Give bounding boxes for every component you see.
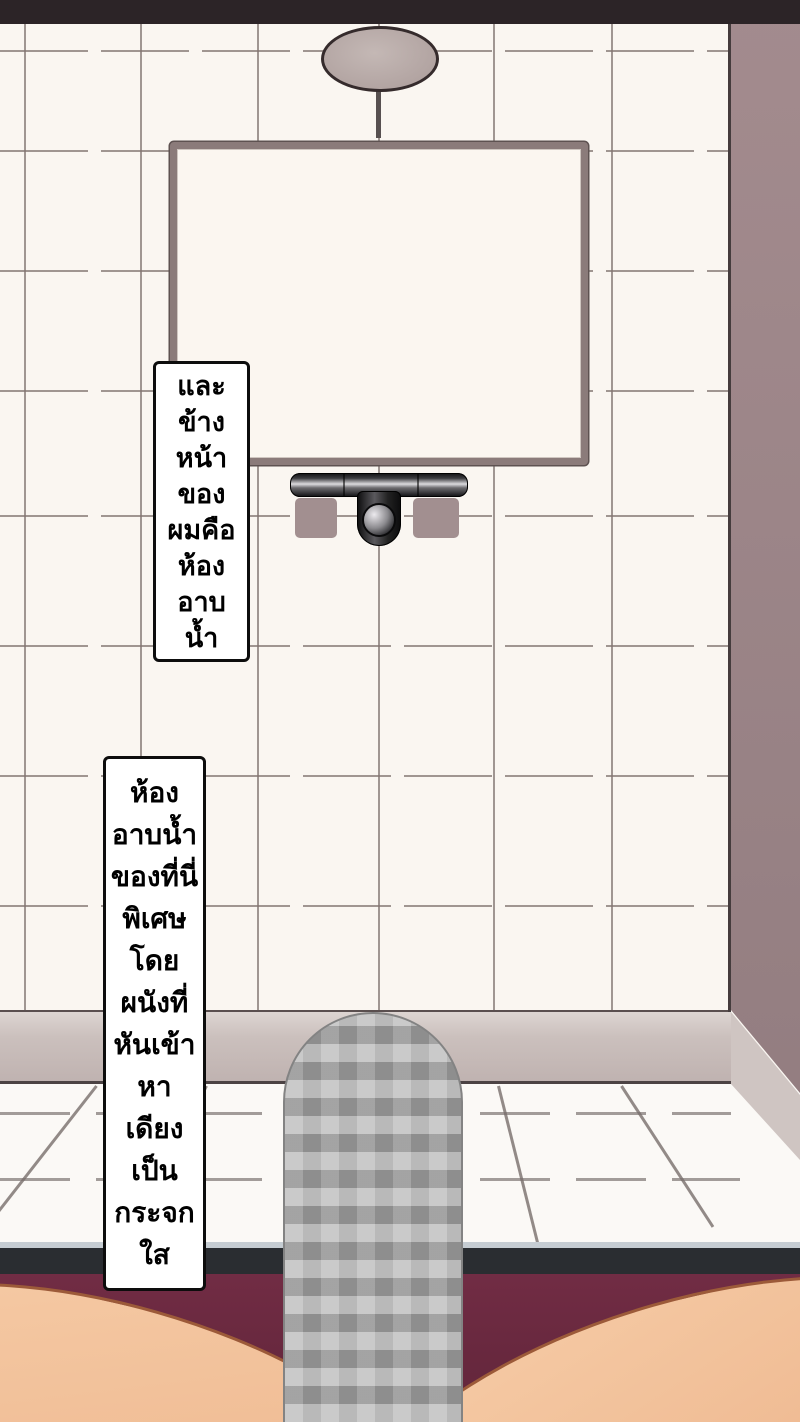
tile-grout-horizontal — [0, 645, 731, 647]
narration-box-1: และ ข้าง หน้า ของ ผมคือ ห้อง อาบ น้ำ — [153, 361, 250, 662]
faucet-spout-opening — [362, 503, 396, 537]
censored-content-block — [283, 1012, 463, 1422]
wall-corner-line — [728, 24, 731, 1012]
comic-panel: และ ข้าง หน้า ของ ผมคือ ห้อง อาบ น้ำ ห้อ… — [0, 0, 800, 1422]
faucet-backplate-right — [413, 498, 459, 538]
ceiling-band — [0, 0, 800, 24]
faucet-bar-notch — [417, 474, 419, 496]
faucet-backplate-left — [295, 498, 337, 538]
faucet-bar-notch — [343, 474, 345, 496]
ceiling-shower-head — [321, 26, 439, 92]
narration-box-2: ห้อง อาบน้ำ ของที่นี่ พิเศษ โดย ผนังที่ … — [103, 756, 206, 1291]
tile-grout-vertical — [611, 24, 613, 1010]
tile-grout-vertical — [24, 24, 26, 1010]
